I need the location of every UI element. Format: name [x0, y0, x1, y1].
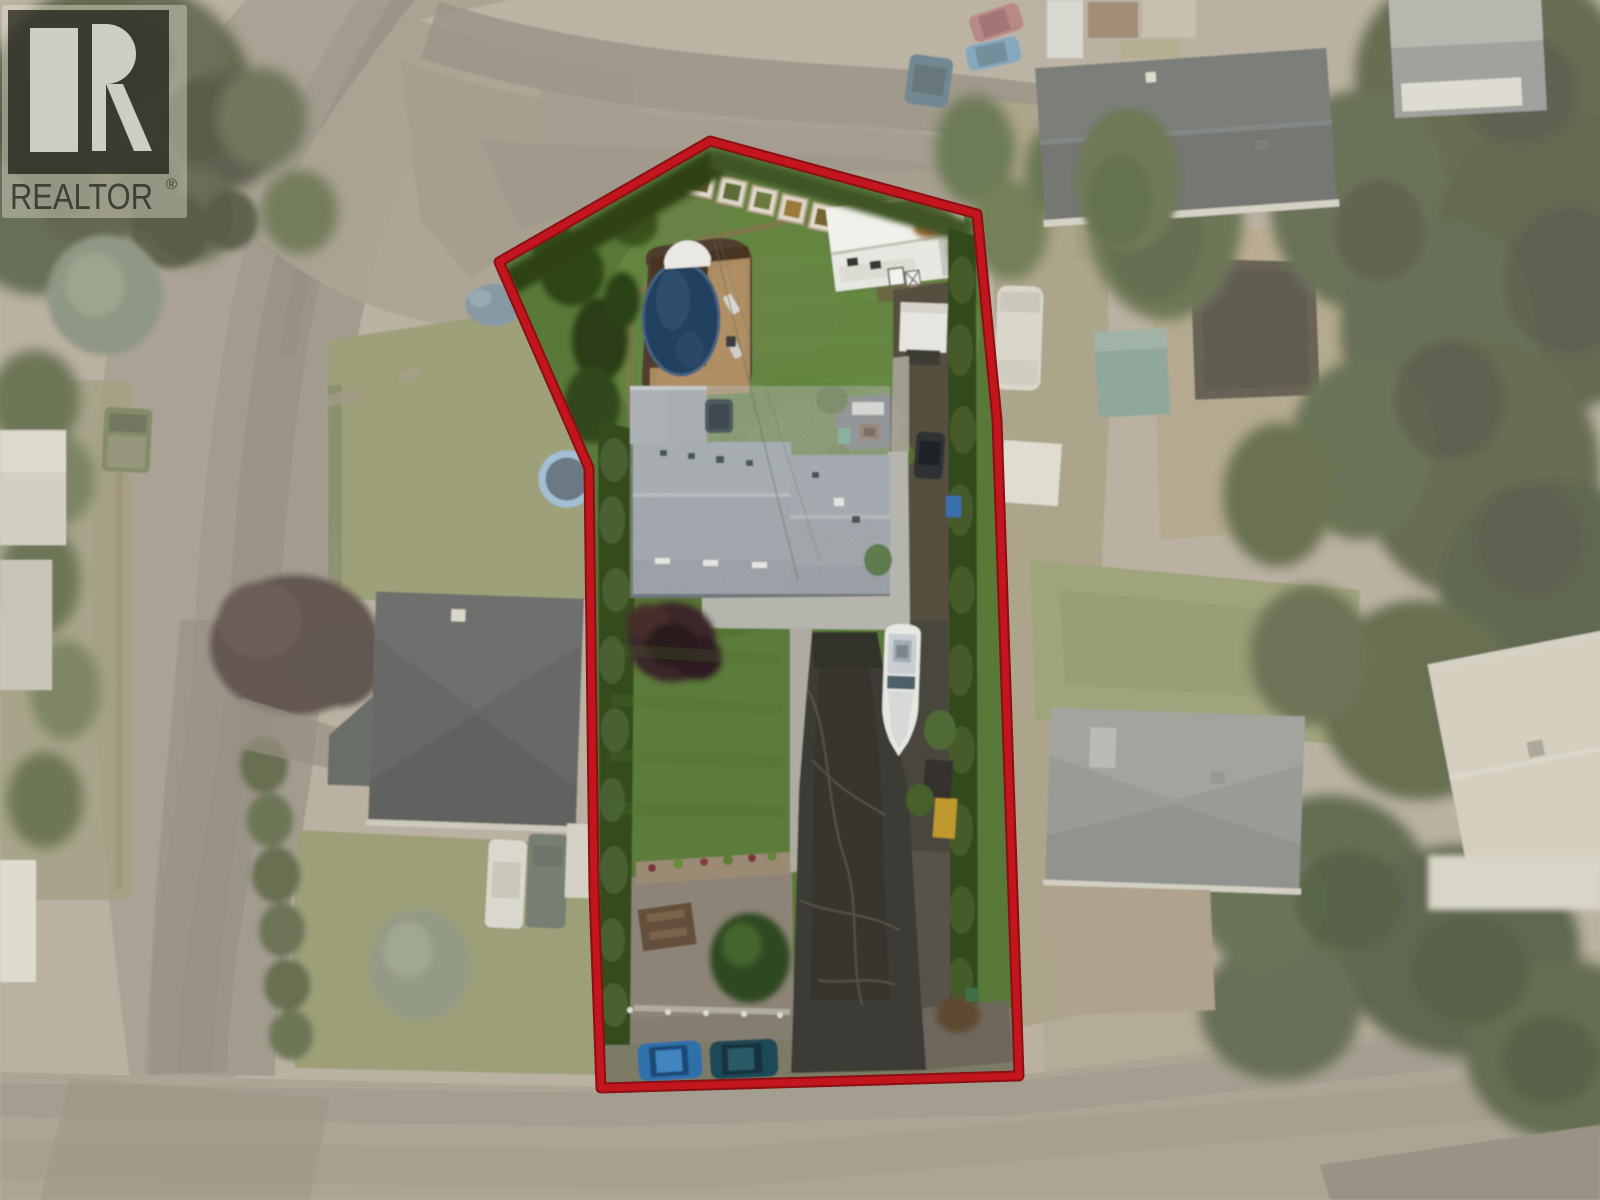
svg-text:REALTOR: REALTOR: [10, 176, 153, 217]
svg-text:®: ®: [166, 176, 177, 193]
